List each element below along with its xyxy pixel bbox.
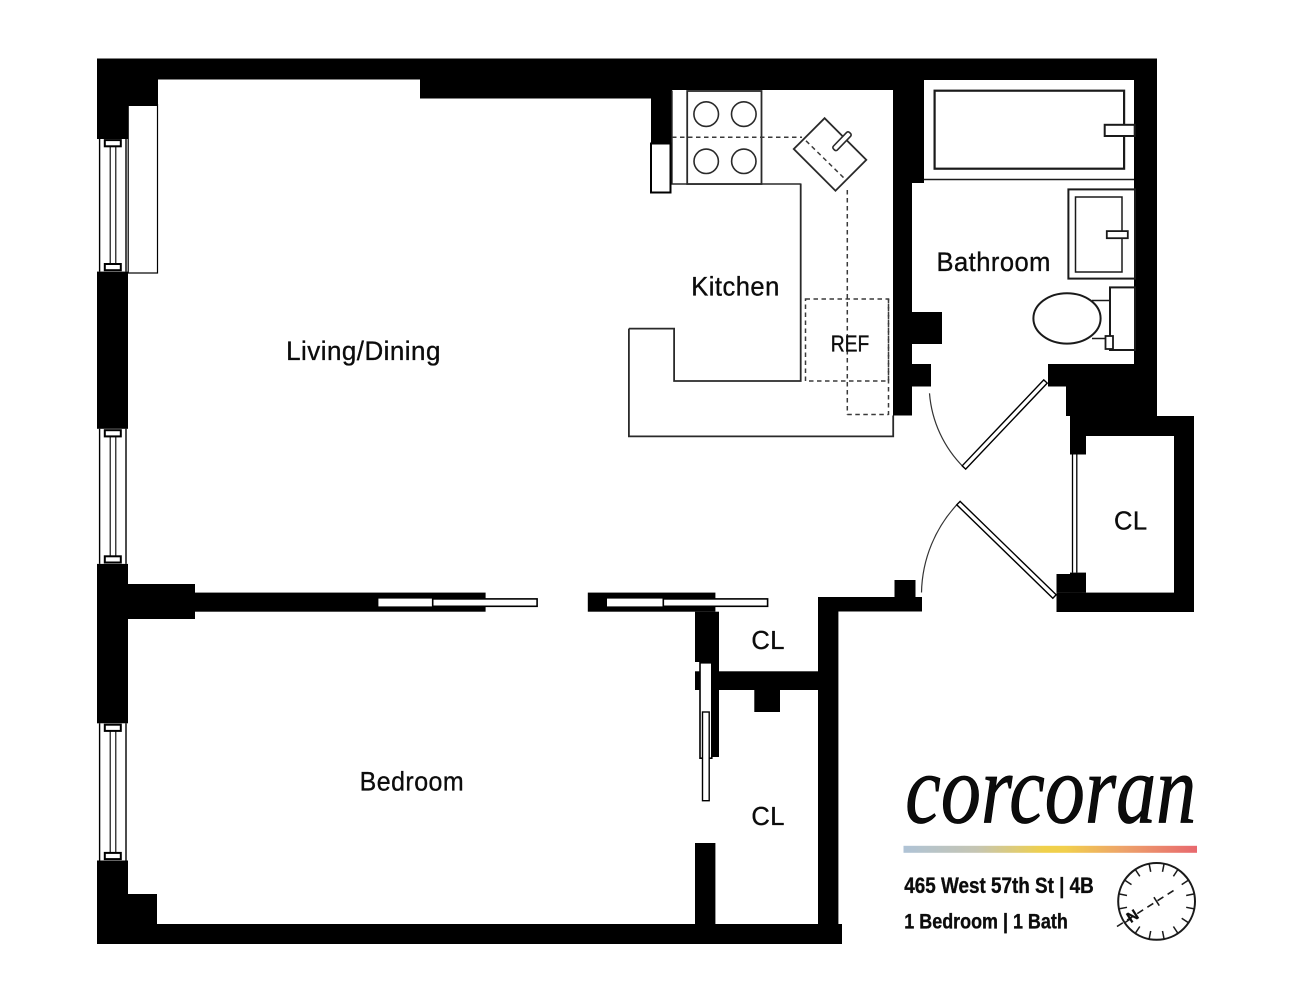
svg-text:Kitchen: Kitchen [691, 272, 780, 302]
svg-text:CL: CL [751, 803, 785, 831]
svg-text:Bedroom: Bedroom [360, 767, 465, 797]
svg-text:corcoran: corcoran [905, 736, 1196, 845]
svg-text:CL: CL [1114, 508, 1148, 536]
svg-text:REF: REF [831, 331, 870, 357]
svg-text:Living/Dining: Living/Dining [286, 336, 441, 366]
svg-text:CL: CL [751, 627, 785, 655]
svg-text:1 Bedroom | 1 Bath: 1 Bedroom | 1 Bath [904, 910, 1068, 934]
svg-text:465 West 57th St | 4B: 465 West 57th St | 4B [904, 873, 1094, 898]
svg-text:Bathroom: Bathroom [937, 247, 1051, 277]
